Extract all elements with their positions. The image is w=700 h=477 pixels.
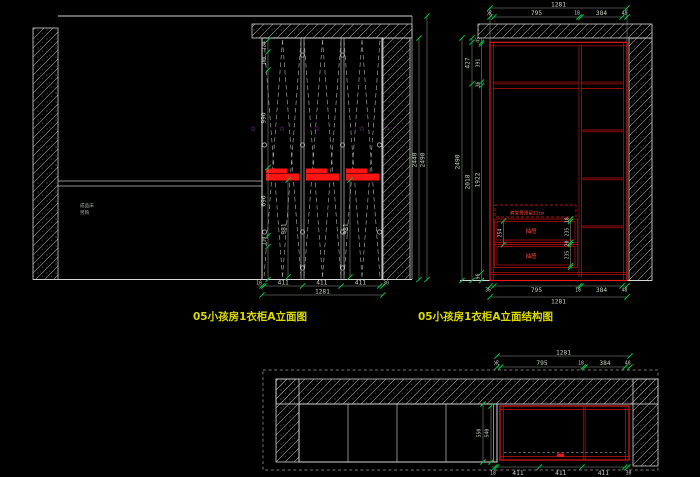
star-icon: ☆ <box>279 123 285 134</box>
right-bay-shelves <box>582 82 624 228</box>
dim-795: 795 <box>536 360 547 367</box>
dim-total-1281: 1281 <box>315 289 330 296</box>
right-wall-hatch <box>383 38 410 280</box>
dim-2490: 2490 <box>455 154 462 169</box>
dim-411-3: 411 <box>355 280 366 287</box>
dim-795: 795 <box>531 10 542 17</box>
star-icon: ☆ <box>250 123 256 134</box>
dim-254: 254 <box>498 229 504 238</box>
dim-411-1: 411 <box>512 470 523 477</box>
plan-depth-dims: 550 540 <box>477 401 494 464</box>
dim-411-2: 411 <box>316 280 327 287</box>
dim-384: 384 <box>599 360 610 367</box>
cabinet-structure: 裤架需预留12cm 抽屉 抽屉 <box>490 42 627 280</box>
plan-white-cabinets <box>299 404 497 462</box>
dim-2018: 2018 <box>465 174 472 189</box>
dim-48: 48 <box>625 361 631 367</box>
drawer-label-1: 抽屉 <box>526 227 537 235</box>
dim-30: 30 <box>626 471 632 477</box>
dim-total-1281: 1281 <box>551 299 566 306</box>
dim-235-2: 235 <box>565 251 571 260</box>
plan-view: 1281 36 795 18 384 48 <box>263 350 658 477</box>
dim-18: 18 <box>565 217 571 223</box>
plan-bottom-dim-chain: 18 411 411 411 30 <box>490 464 631 477</box>
dim-36: 36 <box>495 360 501 366</box>
elevation-view: 成品床 另购 ☆ ☆ ☆ ☆ <box>33 13 430 323</box>
dim-690: 690 <box>261 195 268 206</box>
dim-18: 18 <box>490 471 496 477</box>
dim-550: 550 <box>477 429 483 438</box>
drawer-dim-chain: 18 235 20 235 254 <box>498 216 574 270</box>
door-swing-lines <box>264 40 380 277</box>
dim-384: 384 <box>596 10 607 17</box>
room-note-line1: 成品床 <box>80 202 94 209</box>
dim-18: 18 <box>578 361 584 367</box>
door-handle-bars <box>266 169 379 181</box>
plan-red-marker <box>557 454 564 458</box>
plan-wall-left <box>276 379 299 462</box>
dim-981-left: 981 <box>281 223 288 234</box>
cad-canvas[interactable]: 成品床 另购 ☆ ☆ ☆ ☆ <box>0 0 700 477</box>
dim-1922: 1922 <box>475 172 482 187</box>
dim-981-right: 981 <box>343 223 350 234</box>
door-stiles <box>301 38 344 280</box>
dim-427: 427 <box>465 57 472 68</box>
structure-left-dim-chains: 2490 427 2018 45 391 36 1922 96 <box>455 35 485 283</box>
star-icon: ☆ <box>384 123 390 134</box>
dim-411-1: 411 <box>278 280 289 287</box>
left-wall-hatch <box>33 28 58 280</box>
dim-411-3: 411 <box>598 470 609 477</box>
plan-top-dim-chain: 1281 36 795 18 384 48 <box>494 350 632 370</box>
dim-45: 45 <box>476 37 482 43</box>
dim-18: 18 <box>574 11 580 17</box>
dim-total-1281: 1281 <box>556 350 571 357</box>
dim-391: 391 <box>476 59 482 68</box>
dim-20: 20 <box>565 241 571 247</box>
dim-total-1281: 1281 <box>551 2 566 9</box>
dim-990: 990 <box>261 112 268 123</box>
dim-96: 96 <box>476 274 482 280</box>
cad-drawing-area[interactable]: 成品床 另购 ☆ ☆ ☆ ☆ <box>0 0 700 477</box>
dim-36: 36 <box>485 288 491 294</box>
room-note-line2: 另购 <box>80 209 90 216</box>
dim-795: 795 <box>531 287 542 294</box>
elevation-right-dim-chain: 2440 2490 <box>412 13 430 282</box>
dim-36: 36 <box>488 10 494 16</box>
star-icon: ☆ <box>314 123 320 134</box>
door-height-dims: 981 981 <box>281 177 353 279</box>
structure-bottom-dim-chain: 36 795 18 384 48 1281 <box>485 283 629 305</box>
star-icon: ☆ <box>359 123 365 134</box>
plan-wardrobe-red <box>500 406 629 460</box>
dim-411-2: 411 <box>555 470 566 477</box>
dim-2440: 2440 <box>412 152 419 167</box>
structure-title: 05小孩房1衣柜A立面结构图 <box>418 310 553 323</box>
dim-120: 120 <box>262 42 268 51</box>
dim-48: 48 <box>622 288 628 294</box>
elevation-title: 05小孩房1衣柜A立面图 <box>193 310 307 323</box>
top-beam-hatch <box>252 24 412 38</box>
drawer-label-2: 抽屉 <box>526 252 537 260</box>
elevation-bottom-dim-chain: 18 411 411 411 30 1281 <box>256 280 389 298</box>
dim-235-1: 235 <box>565 228 571 237</box>
reserve-note: 裤架需预留12cm <box>510 210 544 217</box>
plan-wall-right <box>633 379 658 466</box>
dim-18: 18 <box>575 288 581 294</box>
structure-view: 1281 36 795 18 384 48 <box>418 2 652 324</box>
dim-180: 180 <box>262 57 268 66</box>
right-wall-hatch <box>629 38 652 281</box>
top-beam-hatch <box>478 24 652 38</box>
plan-wall-top <box>276 379 658 404</box>
dim-2490: 2490 <box>420 152 427 167</box>
hinge-circles <box>262 53 381 270</box>
dim-48: 48 <box>622 11 628 17</box>
bed-lines <box>58 181 262 186</box>
dim-30: 30 <box>383 281 389 287</box>
dim-110: 110 <box>262 237 268 246</box>
dim-18: 18 <box>256 281 262 287</box>
dim-540: 540 <box>485 429 491 438</box>
dim-384: 384 <box>596 287 607 294</box>
dim-36: 36 <box>476 82 482 88</box>
